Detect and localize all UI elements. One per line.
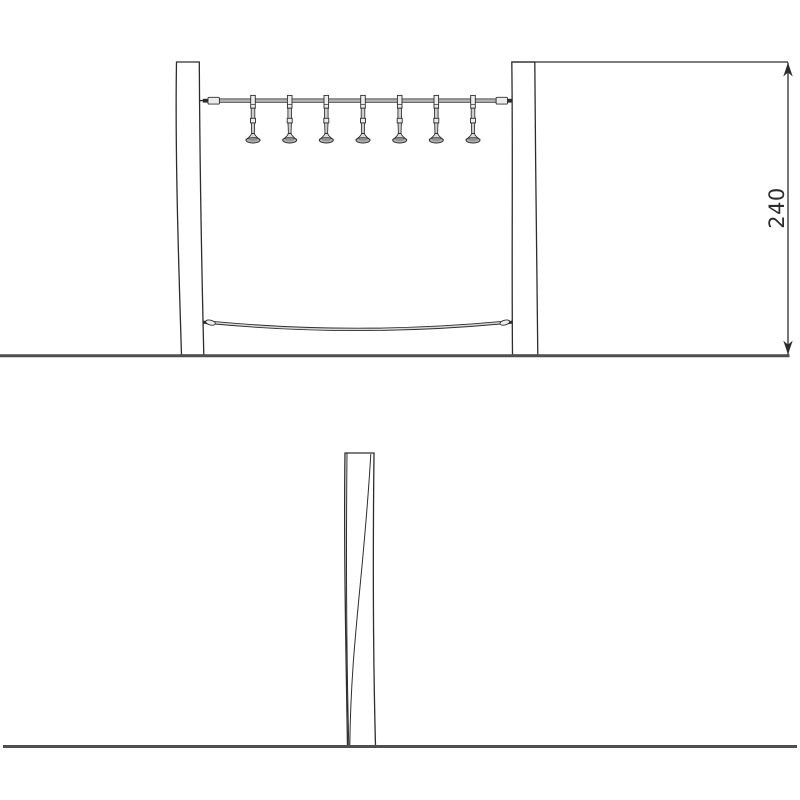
- height-dimension: 240: [512, 62, 793, 355]
- overhead-cable: [199, 97, 513, 104]
- cable-clamp: [397, 95, 402, 108]
- cable-clamp: [434, 95, 439, 108]
- rope-upper-segment: [471, 108, 475, 119]
- rope-lower-segment: [251, 123, 254, 134]
- right-post: [512, 62, 538, 355]
- rope-joint: [324, 118, 329, 123]
- step-bell-highlight: [358, 138, 367, 141]
- rope-lower-segment: [288, 123, 291, 134]
- rope-joint: [287, 118, 292, 123]
- cable-clamp: [251, 95, 256, 108]
- front-elevation-view: 240: [0, 62, 793, 356]
- rope-upper-segment: [435, 108, 439, 119]
- rope-upper-segment: [398, 108, 402, 119]
- rope-upper-segment: [325, 108, 329, 119]
- cable-clamp: [324, 95, 329, 108]
- rope-lower-segment: [398, 123, 401, 134]
- cable-clamp: [471, 95, 476, 108]
- cable-bar: [219, 99, 497, 102]
- rope-shackle-left: [205, 319, 216, 326]
- cable-tensioner-left: [208, 97, 219, 104]
- step-bell-highlight: [285, 138, 294, 141]
- rope-lower-segment: [325, 123, 328, 134]
- rope-upper-segment: [361, 108, 365, 119]
- step-bell-highlight: [432, 138, 441, 141]
- step-bell-highlight: [322, 138, 331, 141]
- rope-lower-segment: [471, 123, 474, 134]
- left-post: [176, 62, 204, 355]
- cable-clamp: [361, 95, 366, 108]
- rope-joint: [397, 118, 402, 123]
- rope-upper-segment: [288, 108, 292, 119]
- dimension-label: 240: [765, 187, 789, 229]
- cable-anchor-left: [203, 99, 208, 103]
- rope-upper-segment: [251, 108, 255, 119]
- side-post: [345, 453, 376, 746]
- step-bell-highlight: [248, 138, 257, 141]
- cable-tensioner-right: [496, 97, 507, 104]
- rope-shackle-right: [499, 319, 510, 326]
- rope-body: [215, 322, 501, 331]
- rope-lower-segment: [435, 123, 438, 134]
- cable-anchor-right: [507, 99, 512, 103]
- side-elevation-view: [3, 453, 797, 747]
- rope-joint: [434, 118, 439, 123]
- technical-drawing-canvas: 240: [0, 0, 800, 800]
- step-bell-highlight: [395, 138, 404, 141]
- cable-clamp: [287, 95, 292, 108]
- rope-joint: [251, 118, 256, 123]
- rope-lower-segment: [361, 123, 364, 134]
- lower-balance-rope: [203, 319, 512, 331]
- step-bell-highlight: [468, 138, 477, 141]
- rope-joint: [471, 118, 476, 123]
- rope-joint: [361, 118, 366, 123]
- technical-drawing: 240: [0, 0, 800, 800]
